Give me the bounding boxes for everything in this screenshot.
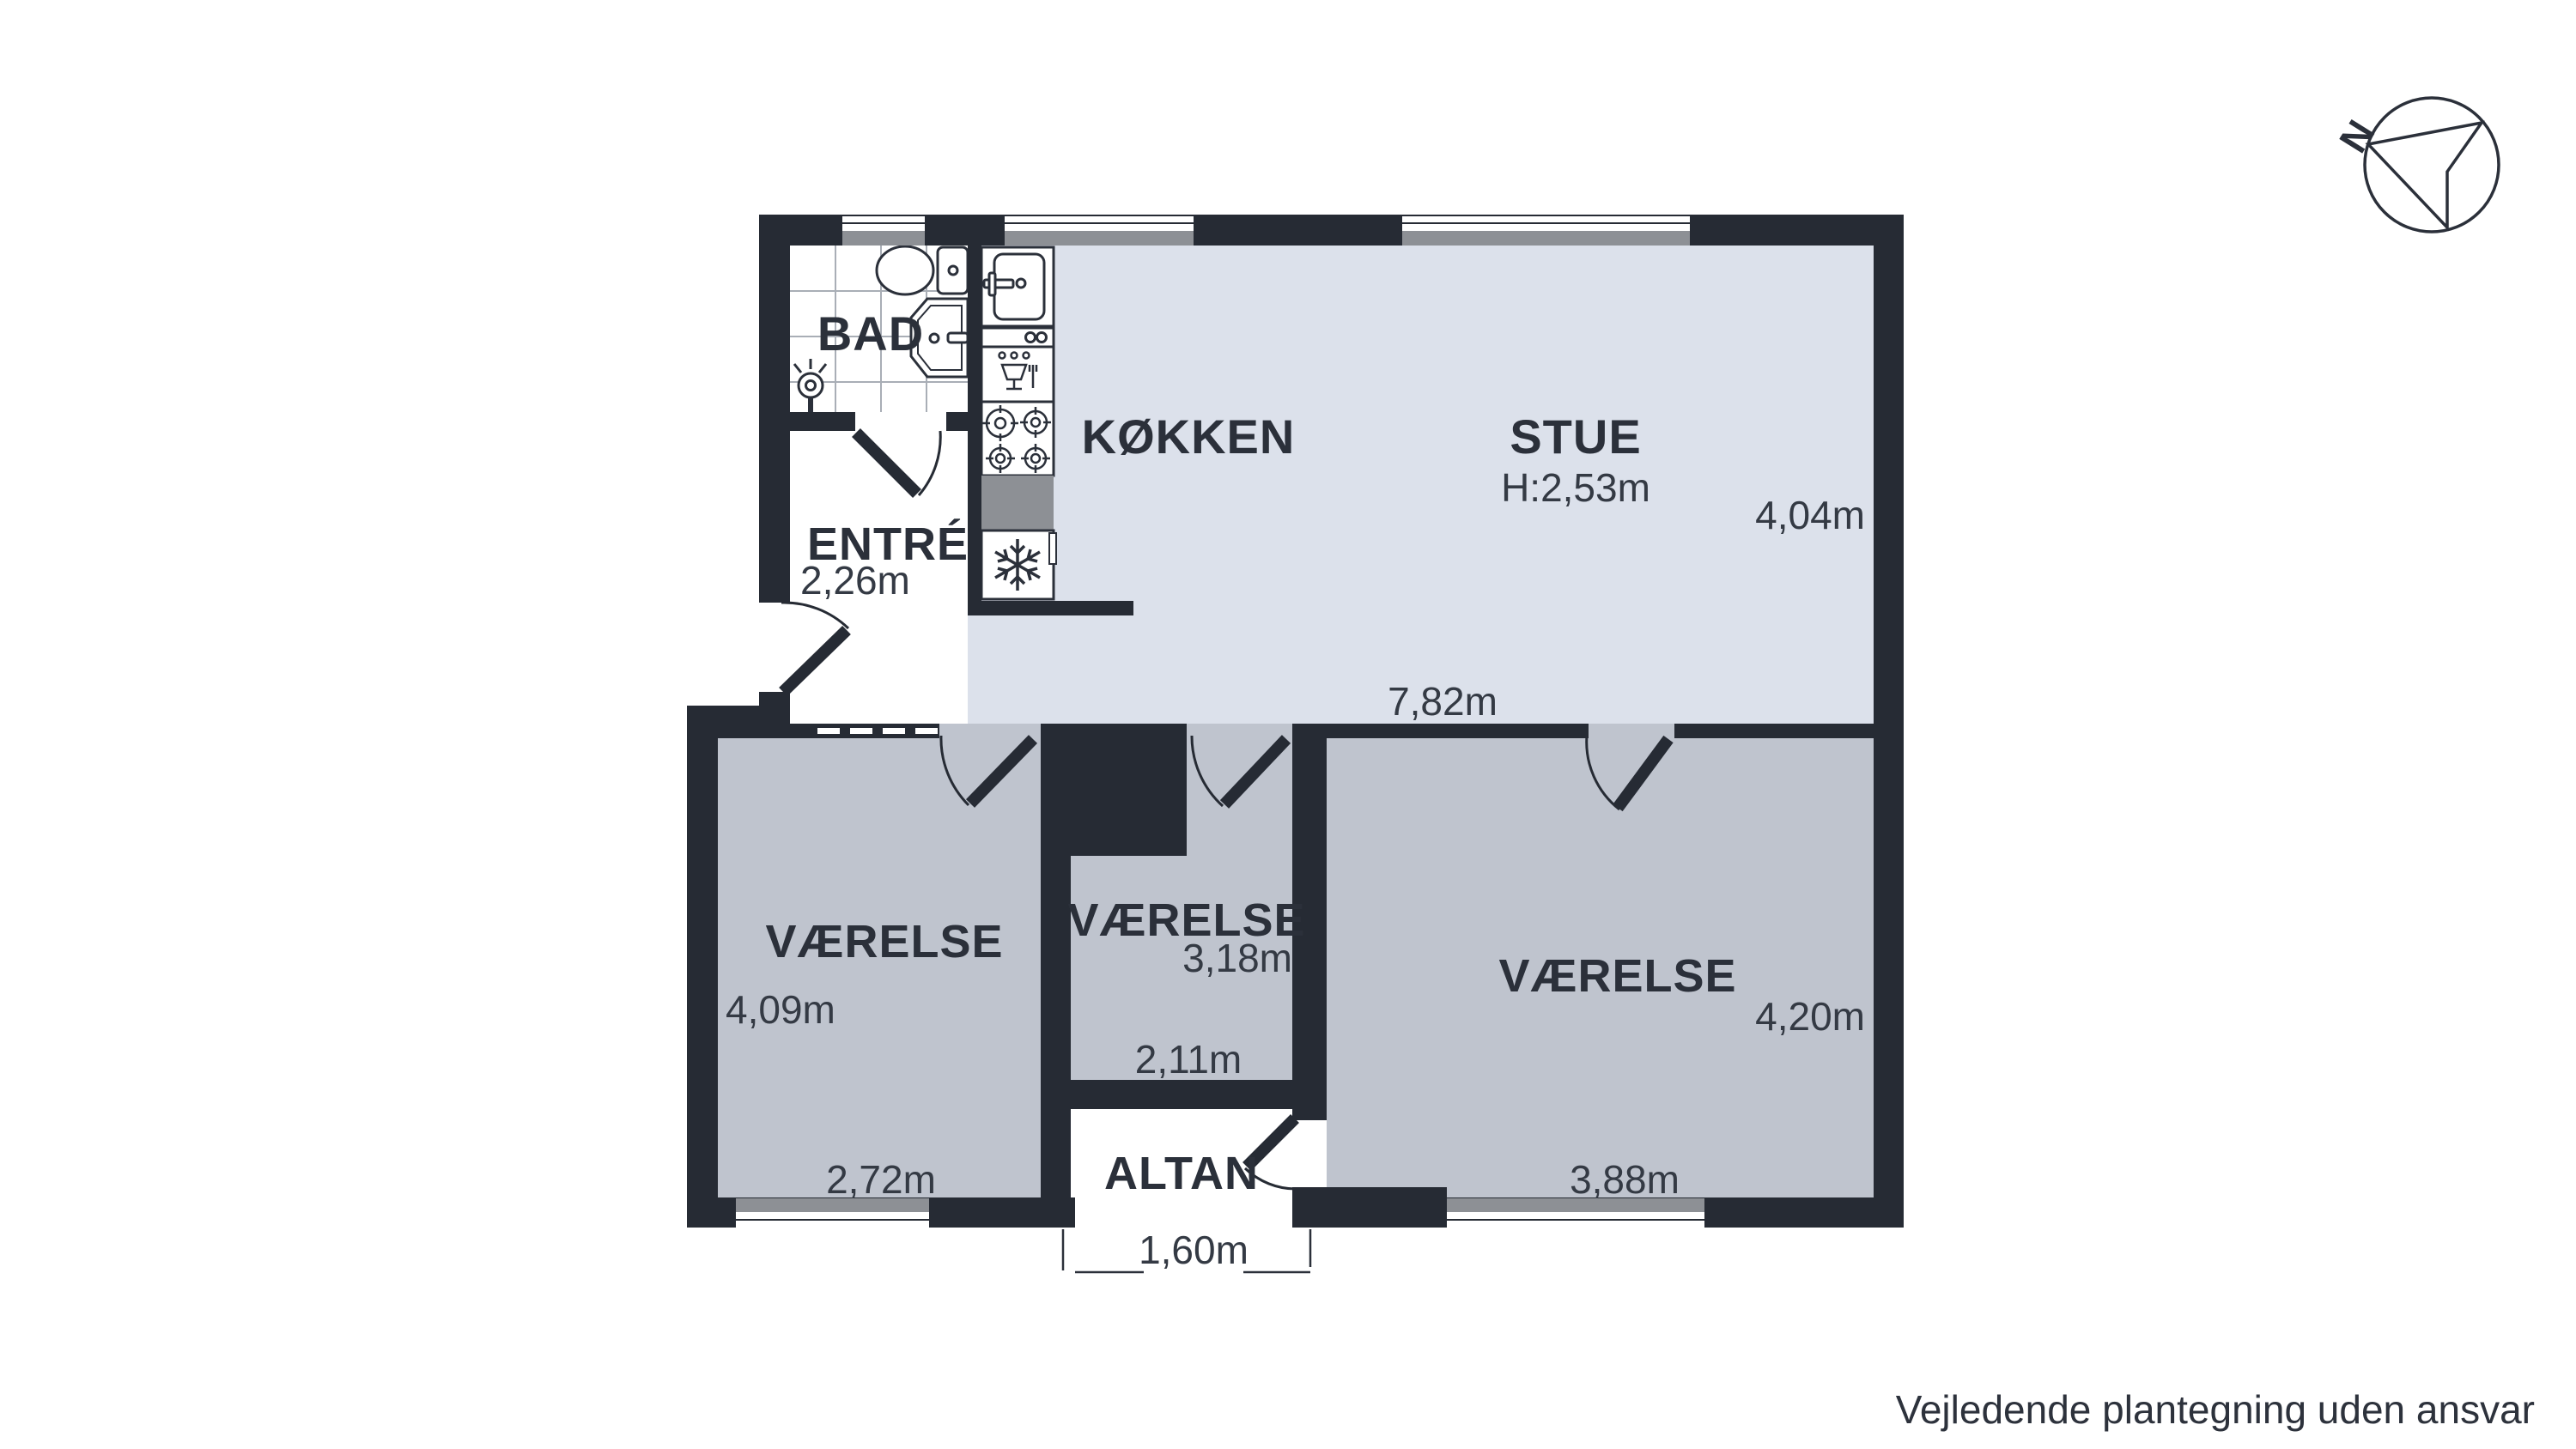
dim-vaerelse-mid-width: 2,11m	[1135, 1037, 1242, 1082]
disclaimer-text: Vejledende plantegning uden ansvar	[1896, 1387, 2535, 1432]
window-vaerelse-left	[736, 1198, 929, 1228]
wall-right	[1874, 215, 1904, 1228]
dim-stue-width: 7,82m	[1388, 679, 1498, 724]
label-vaerelse-left: VÆRELSE	[765, 916, 1003, 967]
stove-icon	[981, 402, 1054, 476]
window-stue	[1402, 216, 1690, 246]
window-vaerelse-right	[1447, 1198, 1704, 1228]
dim-vaerelse-right-width: 3,88m	[1570, 1157, 1680, 1202]
threshold-altan	[1292, 1120, 1327, 1187]
label-altan: ALTAN	[1104, 1148, 1259, 1199]
compass-icon: N	[2330, 98, 2499, 232]
threshold-mid	[1187, 724, 1292, 741]
wall-bad-stub-left	[790, 412, 855, 431]
wall-entre-kitchen	[968, 246, 981, 614]
wall-altan-left	[1041, 1109, 1071, 1228]
dim-entre-width: 2,26m	[800, 558, 910, 603]
floor-plan-page: BAD ENTRÉ 2,26m KØKKEN STUE H:2,53m 4,04…	[0, 0, 2576, 1449]
floor-kitchen-stue	[968, 246, 1874, 724]
kitchen-sink-icon	[981, 247, 1054, 326]
dim-vaerelse-left-width: 2,72m	[826, 1157, 936, 1202]
threshold-right	[1589, 724, 1674, 741]
wall-top	[759, 215, 1904, 246]
kitchen-counter	[981, 476, 1054, 530]
wall-bad-stub-right	[946, 412, 968, 431]
window-kokken	[1005, 216, 1194, 246]
floor-vaerelse-left	[718, 738, 1041, 1197]
wall-kitchen-stub	[968, 601, 1133, 615]
wall-hall-bedroom-b	[1327, 724, 1589, 738]
floor-plan: BAD ENTRÉ 2,26m KØKKEN STUE H:2,53m 4,04…	[0, 0, 2576, 1449]
kitchen-appliances	[981, 247, 1056, 599]
dim-altan-width: 1,60m	[1139, 1228, 1249, 1272]
dim-stue-height: H:2,53m	[1501, 465, 1650, 510]
fridge-icon	[981, 530, 1056, 599]
wall-closet-block	[1041, 724, 1187, 856]
wall-upper-left	[759, 215, 790, 603]
wall-mid-bottom	[1071, 1080, 1327, 1109]
label-vaerelse-right: VÆRELSE	[1498, 950, 1736, 1002]
dim-vaerelse-right-depth: 4,20m	[1755, 994, 1865, 1039]
wall-lower-left	[687, 706, 718, 1228]
dim-stue-depth: 4,04m	[1755, 493, 1865, 537]
dishwasher-icon	[981, 328, 1054, 402]
window-bad	[842, 216, 925, 246]
wall-hall-bedroom-c	[1674, 724, 1874, 738]
label-stue: STUE	[1510, 409, 1641, 464]
dim-vaerelse-mid-depth: 3,18m	[1182, 936, 1292, 980]
wall-altan-right-corner	[1292, 1187, 1447, 1228]
label-kokken: KØKKEN	[1082, 409, 1296, 464]
label-bad: BAD	[817, 306, 924, 361]
toilet-icon	[877, 246, 968, 294]
dim-vaerelse-left-depth: 4,09m	[726, 987, 835, 1032]
